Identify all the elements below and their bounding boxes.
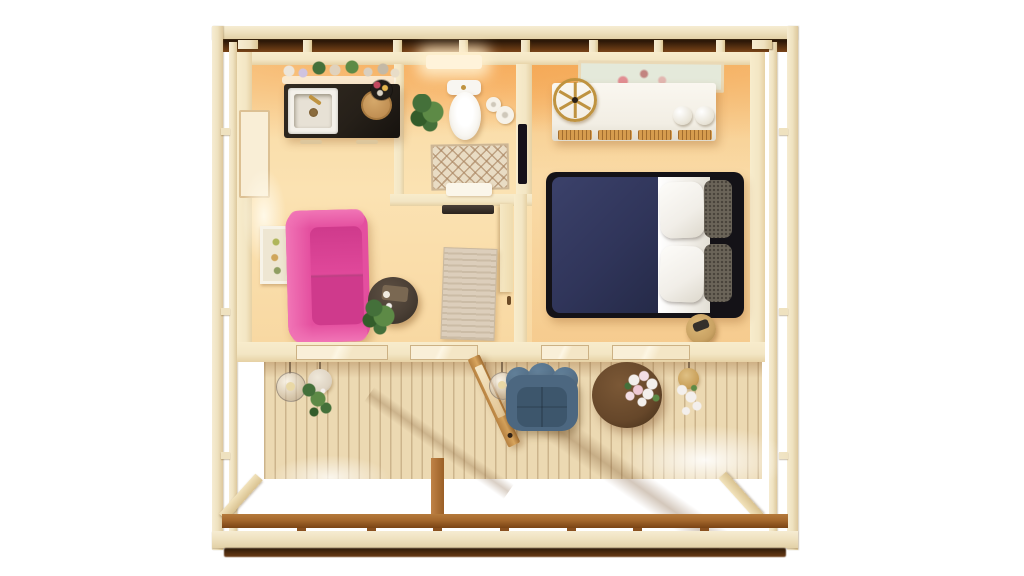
pink-sofa	[285, 209, 370, 343]
frame-bottom-beam	[212, 531, 798, 548]
sofa-seat-cushions	[310, 226, 365, 325]
wardrobe-rattan-door	[638, 130, 672, 140]
wall-log-end	[238, 40, 258, 49]
wheel-hub	[572, 97, 578, 103]
frame-left-post-inner	[229, 42, 237, 532]
toilet-paper-roll	[496, 106, 514, 124]
left-wall-cabinet-door	[239, 110, 270, 198]
sofa-armrest	[291, 323, 367, 343]
wardrobe-rattan-door	[598, 130, 632, 140]
scene-canvas	[0, 0, 1024, 576]
drawer-handle	[300, 140, 322, 144]
window	[410, 345, 478, 360]
chair-seat	[517, 387, 567, 427]
exterior-wall-right	[750, 52, 765, 354]
hanging-plant-vines	[300, 382, 336, 420]
flower-vase	[371, 80, 392, 100]
wardrobe-vase-sphere	[695, 106, 714, 125]
deck-lounge-chair	[504, 361, 580, 435]
living-rug	[440, 247, 497, 341]
gold-wheel-clock	[553, 78, 597, 122]
frame-rung	[221, 128, 230, 135]
window	[612, 345, 690, 360]
bed-cushion-knit	[704, 244, 732, 302]
frame-rung	[779, 452, 788, 459]
wall-log-end	[752, 40, 772, 49]
hanging-flower-blooms	[672, 382, 706, 420]
frame-top-beam	[212, 26, 798, 39]
drawer-handle	[356, 140, 378, 144]
wall-living-bedroom	[514, 194, 527, 354]
frame-left-post-outer	[212, 26, 223, 550]
frame-rung	[779, 128, 788, 135]
front-rail	[222, 514, 788, 528]
frame-right-post-inner	[769, 42, 777, 532]
bed-cushion-knit	[704, 180, 732, 238]
hall-vent-shelf	[442, 205, 494, 214]
wardrobe-rattan-door	[558, 130, 592, 140]
interior-door-leaf	[500, 204, 513, 292]
ground-shadow	[224, 548, 786, 557]
table-flower-bouquet	[620, 368, 666, 412]
wardrobe-rattan-door	[678, 130, 712, 140]
corner-brace-right	[719, 472, 764, 520]
window	[541, 345, 589, 360]
window	[296, 345, 388, 360]
coffee-table-cup	[383, 291, 390, 298]
coffee-table-plant	[362, 298, 402, 336]
door-handle-mark	[507, 296, 511, 305]
exterior-wall-left	[237, 52, 252, 354]
bed-duvet	[552, 177, 658, 313]
bed-pillow-white	[659, 181, 705, 239]
frame-rung	[779, 308, 788, 315]
frame-rung	[221, 308, 230, 315]
frame-rung	[221, 452, 230, 459]
bedroom-doorway-gap	[518, 124, 527, 184]
bed-pillow-white	[659, 245, 705, 303]
deck-center-post	[431, 458, 444, 518]
toilet-flush-button	[461, 85, 466, 90]
sofa-backrest	[285, 210, 312, 343]
frame-right-post-outer	[787, 26, 798, 550]
sink-drain	[309, 108, 318, 117]
pendant-cord	[501, 362, 503, 372]
toilet-bowl	[449, 92, 481, 140]
bathroom-mat	[446, 183, 492, 196]
wardrobe-vase-sphere	[673, 106, 692, 125]
bathroom-plant	[410, 94, 450, 134]
pendant-bulb	[286, 382, 295, 391]
